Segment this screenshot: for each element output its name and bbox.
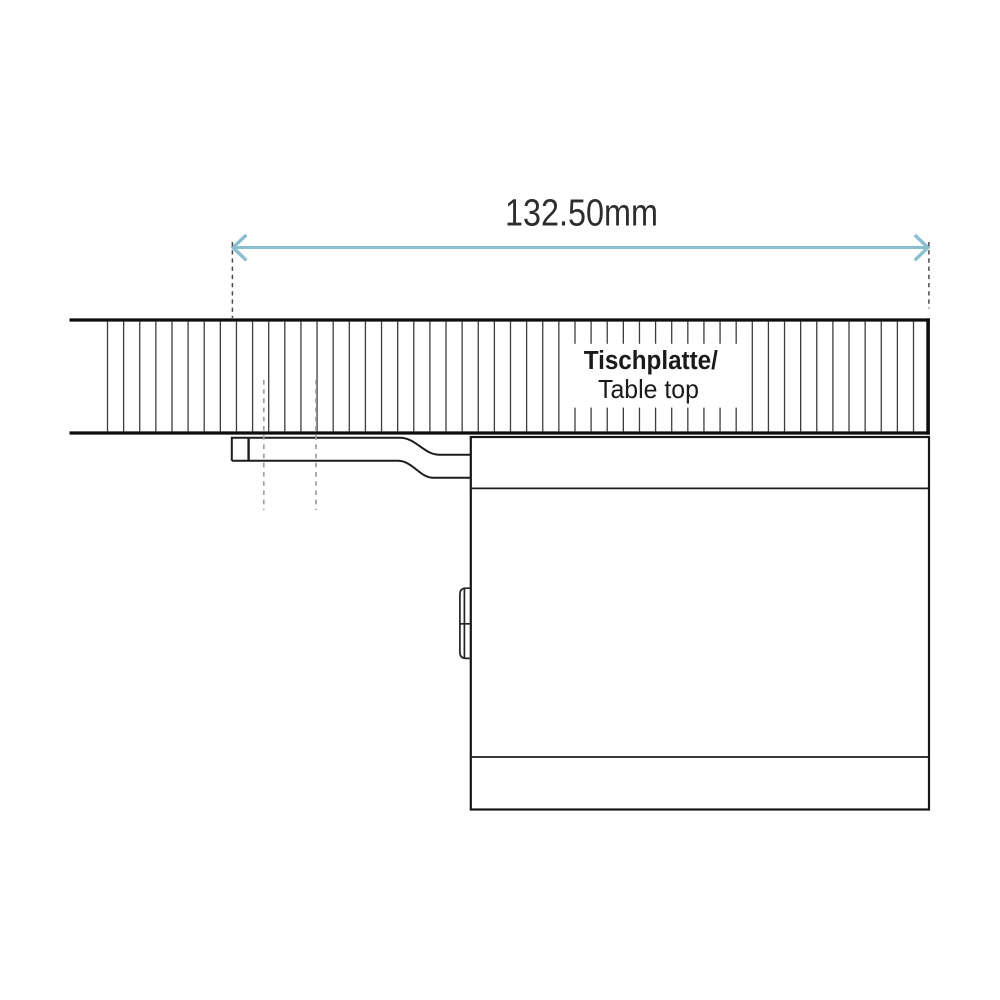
svg-text:Table top: Table top: [598, 376, 699, 404]
svg-text:132.50mm: 132.50mm: [505, 192, 658, 234]
svg-text:Tischplatte/: Tischplatte/: [584, 346, 718, 375]
